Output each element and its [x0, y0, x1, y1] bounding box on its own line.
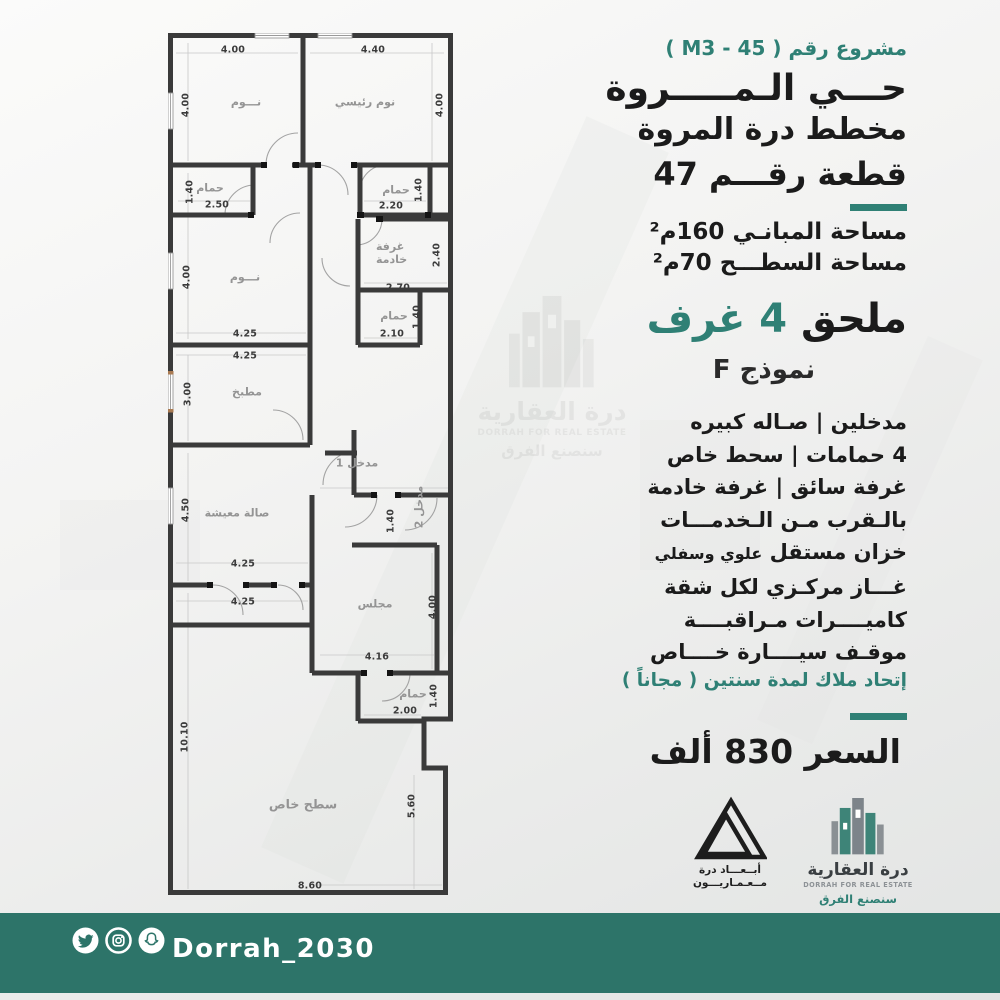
- dim: 1.40: [185, 180, 196, 204]
- dim: 4.40: [361, 45, 385, 56]
- dim: 4.00: [221, 45, 245, 56]
- feature-item: 4 حمامات | سحط خاص: [647, 439, 907, 472]
- dim: 8.60: [298, 881, 322, 892]
- annex-title: ملحق 4 غرف: [647, 296, 907, 342]
- feature-item-tank: خزان مستقل علوي وسفلي: [647, 536, 907, 571]
- social-icons: [72, 927, 165, 954]
- dim: 4.00: [181, 93, 192, 117]
- watermark-name-en: DORRAH FOR REAL ESTATE: [462, 428, 642, 438]
- real-estate-poster: درة العقارية DORRAH FOR REAL ESTATE سنصن…: [0, 0, 1000, 1000]
- abaad-triangle-icon: [693, 796, 767, 860]
- social-handle[interactable]: Dorrah_2030: [172, 934, 375, 964]
- annex-label: ملحق: [801, 296, 907, 342]
- dorrah-name-en: DORRAH FOR REAL ESTATE: [803, 881, 913, 889]
- dim: 2.70: [386, 283, 410, 294]
- feature-item: مدخلين | صـاله كبيره: [647, 406, 907, 439]
- feature-item: بالـقرب مـن الـخدمـــات: [647, 504, 907, 537]
- room-label-entrance1: مدخل 1: [336, 457, 378, 470]
- dim: 2.50: [205, 200, 229, 211]
- room-label-living: صالة معيشة: [205, 507, 270, 520]
- divider-line: [850, 713, 907, 720]
- tank-sub: علوي وسفلي: [655, 544, 763, 563]
- tank-main: خزان مستقل: [770, 540, 907, 564]
- divider-line: [850, 204, 907, 211]
- dim: 4.25: [233, 329, 257, 340]
- dim: 10.10: [180, 721, 191, 752]
- room-label-master: نوم رئيسي: [335, 96, 395, 109]
- dim: 4.16: [365, 652, 389, 663]
- abaad-name-line1: أبــعـــاد درة: [688, 864, 772, 877]
- snapchat-icon[interactable]: [138, 927, 165, 954]
- price: السعر 830 ألف: [650, 732, 901, 771]
- room-label-bath3: حمام: [380, 310, 408, 323]
- feature-item: موقـف سيــــارة خــــاص: [647, 636, 907, 669]
- window-mark: [168, 409, 174, 413]
- room-label-bath4: حمام: [399, 688, 427, 701]
- dorrah-logo: درة العقارية DORRAH FOR REAL ESTATE سنصن…: [803, 798, 913, 906]
- room-label-entrance2: مدخل 2: [413, 486, 426, 528]
- dim: 2.20: [379, 201, 403, 212]
- floor-plan: 4.00 4.40 4.00 4.00 نـــوم نوم رئيسي حما…: [168, 33, 453, 905]
- dim: 4.50: [181, 498, 192, 522]
- built-area: مساحة المبانـي 160م²: [649, 219, 907, 245]
- dim: 1.40: [412, 305, 423, 329]
- dorrah-name-ar: درة العقارية: [803, 860, 913, 880]
- room-label-bath1: حمام: [196, 182, 224, 195]
- dim: 1.40: [386, 509, 397, 533]
- feature-item: غرفة سائق | غرفة خادمة: [647, 471, 907, 504]
- info-column: مشروع رقم ( M3 - 45 ) حـــي الـمـــــروة…: [618, 0, 910, 910]
- dim: 1.40: [429, 684, 440, 708]
- dim: 4.25: [231, 597, 255, 608]
- abaad-logo: أبــعـــاد درة مــعـمـاريـــون: [688, 796, 772, 890]
- roof-area: مساحة السطـــح 70م²: [653, 250, 907, 276]
- instagram-icon[interactable]: [105, 927, 132, 954]
- dorrah-buildings-icon: [829, 798, 887, 856]
- dorrah-watermark: درة العقارية DORRAH FOR REAL ESTATE سنصن…: [462, 293, 642, 460]
- dim: 4.25: [233, 351, 257, 362]
- room-label-bed1: نـــوم: [231, 96, 261, 109]
- dorrah-slogan: سنصنع الفرق: [803, 892, 913, 906]
- floor-plan-drawing: [168, 33, 453, 905]
- dim: 2.40: [432, 243, 443, 267]
- district-title: حـــي الـمـــــروة: [605, 68, 907, 109]
- room-label-bed2: نـــوم: [230, 271, 260, 284]
- room-label-bath2: حمام: [382, 184, 410, 197]
- dim: 5.60: [407, 794, 418, 818]
- union-note: إتحاد ملاك لمدة سنتين ( مجاناً ): [622, 670, 907, 691]
- annex-value: 4 غرف: [647, 296, 787, 342]
- watermark-slogan: سنصنع الفرق: [462, 442, 642, 460]
- dim: 2.00: [393, 706, 417, 717]
- project-number: مشروع رقم ( M3 - 45 ): [665, 36, 907, 60]
- plot-number: قطعة رقـــم 47: [653, 155, 907, 193]
- room-label-kitchen: مطبخ: [232, 386, 262, 399]
- features-list: مدخلين | صـاله كبيره 4 حمامات | سحط خاص …: [647, 406, 907, 669]
- dorrah-buildings-icon: [509, 293, 595, 393]
- room-label-majlis: مجلس: [358, 598, 393, 611]
- window-mark: [168, 371, 174, 375]
- model-label: نموذج F: [618, 355, 910, 385]
- watermark-name-ar: درة العقارية: [462, 397, 642, 426]
- feature-item: غـــاز مركـزي لكل شقة: [647, 571, 907, 604]
- plan-name: مخطط درة المروة: [638, 112, 908, 147]
- abaad-name-line2: مــعـمـاريـــون: [688, 877, 772, 890]
- dim: 4.00: [428, 595, 439, 619]
- dim: 2.10: [380, 329, 404, 340]
- twitter-icon[interactable]: [72, 927, 99, 954]
- footer-bar: Dorrah_2030: [0, 913, 1000, 993]
- feature-item: كاميــــرات مـراقبــــة: [647, 604, 907, 637]
- room-label-roof: سطح خاص: [269, 797, 337, 812]
- dim: 4.00: [182, 265, 193, 289]
- dim: 4.00: [435, 93, 446, 117]
- room-label-maid: غرفة خادمة: [376, 240, 420, 266]
- dim: 3.00: [183, 382, 194, 406]
- dim: 1.40: [414, 178, 425, 202]
- dim: 4.25: [231, 559, 255, 570]
